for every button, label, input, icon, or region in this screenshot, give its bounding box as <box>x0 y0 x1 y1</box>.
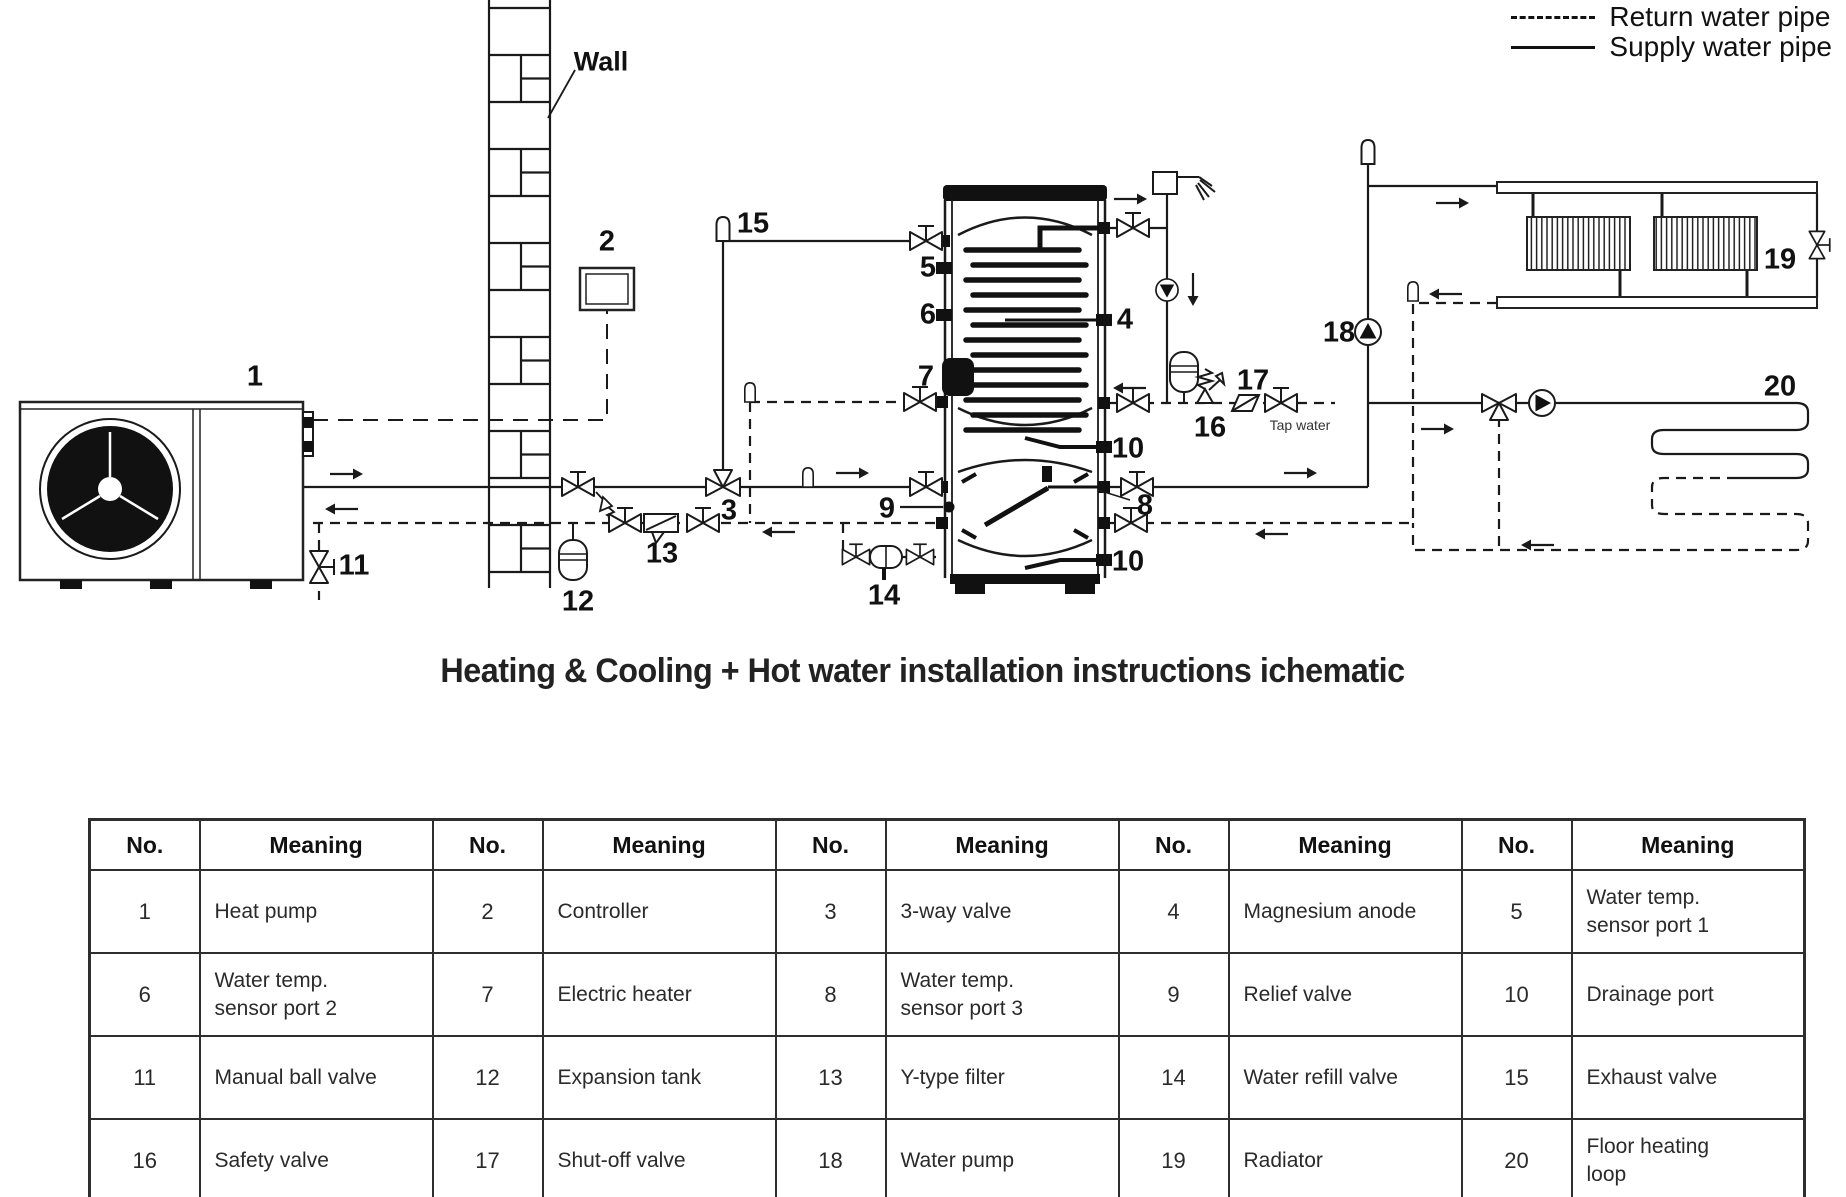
page-title-text: Heating & Cooling + Hot water installati… <box>441 652 1405 691</box>
diagram-label-12: 12 <box>562 588 594 617</box>
table-cell-meaning: Expansion tank <box>543 1036 776 1119</box>
drainage-port-lower <box>1096 554 1112 566</box>
table-cell-meaning: Water pump <box>886 1119 1119 1197</box>
table-cell-meaning: Electric heater <box>543 953 776 1036</box>
diagram-label-6: 6 <box>920 301 936 330</box>
table-cell-no: 20 <box>1462 1119 1572 1197</box>
controller <box>580 268 634 310</box>
diagram-label-2: 2 <box>599 228 615 257</box>
diagram-label-wall: Wall <box>574 49 629 76</box>
electric-heater <box>942 358 974 396</box>
page: 1Wall21556743131211149810101617181920Tap… <box>0 0 1846 1197</box>
diagram-label-13: 13 <box>646 540 678 569</box>
dashed-line-sample <box>1511 16 1595 19</box>
table-cell-no: 17 <box>433 1119 543 1197</box>
pressure-vessel <box>1170 352 1198 403</box>
table-cell-meaning: Magnesium anode <box>1229 870 1462 953</box>
diagram-label-10: 10 <box>1112 435 1144 464</box>
header-meaning: Meaning <box>1229 820 1462 871</box>
diagram-label-1: 1 <box>247 363 263 392</box>
diagram-label-7: 7 <box>918 363 934 392</box>
diagram-label-tap-water: Tap water <box>1270 418 1331 432</box>
floor-mixing-valve <box>1482 394 1516 420</box>
diagram-label-16: 16 <box>1194 414 1226 443</box>
circulation-pump <box>1156 279 1178 301</box>
table-row: 11Manual ball valve12Expansion tank13Y-t… <box>90 1036 1805 1119</box>
table-cell-no: 12 <box>433 1036 543 1119</box>
header-meaning: Meaning <box>1572 820 1805 871</box>
table-cell-no: 9 <box>1119 953 1229 1036</box>
legend-table-wrap: No.MeaningNo.MeaningNo.MeaningNo.Meaning… <box>88 818 1803 1197</box>
check-valve <box>1232 395 1259 411</box>
sensor-port-2 <box>936 309 952 321</box>
legend-supply-label: Supply water pipe <box>1609 31 1832 63</box>
tap-shutoff-valve <box>1265 388 1297 412</box>
table-cell-meaning: Controller <box>543 870 776 953</box>
diagram-label-3: 3 <box>721 497 737 526</box>
table-cell-meaning: Drainage port <box>1572 953 1805 1036</box>
diagram-label-14: 14 <box>868 582 900 611</box>
table-cell-no: 1 <box>90 870 200 953</box>
table-cell-meaning: Water refill valve <box>1229 1036 1462 1119</box>
diagram-label-5: 5 <box>920 254 936 283</box>
water-tank <box>936 185 1130 594</box>
drainage-port-upper <box>1096 441 1112 453</box>
diagram-label-20: 20 <box>1764 373 1796 402</box>
table-cell-no: 2 <box>433 870 543 953</box>
table-cell-meaning: Water temp. sensor port 3 <box>886 953 1119 1036</box>
table-cell-meaning: Y-type filter <box>886 1036 1119 1119</box>
table-cell-meaning: Safety valve <box>200 1119 433 1197</box>
table-cell-meaning: Shut-off valve <box>543 1119 776 1197</box>
table-cell-no: 19 <box>1119 1119 1229 1197</box>
table-row: 16Safety valve17Shut-off valve18Water pu… <box>90 1119 1805 1197</box>
diagram-label-4: 4 <box>1117 306 1133 335</box>
table-row: 6Water temp. sensor port 27Electric heat… <box>90 953 1805 1036</box>
table-cell-meaning: Water temp. sensor port 1 <box>1572 870 1805 953</box>
heat-pump <box>20 402 313 589</box>
header-meaning: Meaning <box>543 820 776 871</box>
table-cell-no: 5 <box>1462 870 1572 953</box>
table-cell-no: 14 <box>1119 1036 1229 1119</box>
table-row: 1Heat pump2Controller33-way valve4Magnes… <box>90 870 1805 953</box>
return-pipes <box>313 303 1808 600</box>
radiator-2 <box>1654 217 1757 270</box>
diagram-label-11: 11 <box>339 552 370 581</box>
relief-valve-port <box>944 502 955 513</box>
diagram-label-17: 17 <box>1237 367 1269 396</box>
wall-bricks <box>489 0 550 588</box>
exhaust-valve-15 <box>717 217 730 241</box>
shower-icon <box>1153 172 1215 200</box>
three-way-valve <box>706 470 740 496</box>
legend-table: No.MeaningNo.MeaningNo.MeaningNo.Meaning… <box>88 818 1806 1197</box>
header-no: No. <box>90 820 200 871</box>
installation-schematic: 1Wall21556743131211149810101617181920Tap… <box>0 0 1846 625</box>
diagram-label-10: 10 <box>1112 548 1144 577</box>
diagram-label-19: 19 <box>1764 246 1796 275</box>
diagram-label-15: 15 <box>737 210 769 239</box>
water-pump-18 <box>1355 319 1381 345</box>
floor-loop-pump <box>1529 390 1555 416</box>
water-refill-valve <box>870 546 902 580</box>
tank-coil <box>966 250 1086 430</box>
sensor-port-1 <box>936 262 952 274</box>
diagram-label-18: 18 <box>1323 319 1355 348</box>
radiator-valve <box>1809 231 1829 258</box>
expansion-tank <box>559 523 587 580</box>
diagram-label-8: 8 <box>1137 492 1153 521</box>
table-cell-no: 16 <box>90 1119 200 1197</box>
radiator-1 <box>1527 217 1630 270</box>
table-cell-meaning: Relief valve <box>1229 953 1462 1036</box>
header-no: No. <box>433 820 543 871</box>
legend-return-label: Return water pipe <box>1609 1 1830 33</box>
table-cell-meaning: 3-way valve <box>886 870 1119 953</box>
pipe-legend: Return water pipe Supply water pipe <box>1511 2 1832 62</box>
table-cell-meaning: Exhaust valve <box>1572 1036 1805 1119</box>
table-cell-no: 4 <box>1119 870 1229 953</box>
table-cell-meaning: Water temp. sensor port 2 <box>200 953 433 1036</box>
header-no: No. <box>776 820 886 871</box>
table-cell-meaning: Manual ball valve <box>200 1036 433 1119</box>
table-cell-no: 18 <box>776 1119 886 1197</box>
header-no: No. <box>1462 820 1572 871</box>
table-cell-no: 8 <box>776 953 886 1036</box>
manual-ball-valve <box>310 551 334 583</box>
diagram-label-9: 9 <box>879 495 895 524</box>
table-header-row: No.MeaningNo.MeaningNo.MeaningNo.Meaning… <box>90 820 1805 871</box>
table-cell-meaning: Floor heating loop <box>1572 1119 1805 1197</box>
table-cell-no: 13 <box>776 1036 886 1119</box>
header-no: No. <box>1119 820 1229 871</box>
page-title: Heating & Cooling + Hot water installati… <box>0 652 1846 691</box>
table-cell-no: 11 <box>90 1036 200 1119</box>
table-cell-no: 10 <box>1462 953 1572 1036</box>
table-cell-no: 3 <box>776 870 886 953</box>
wall-leader-line <box>548 70 575 118</box>
legend-supply: Supply water pipe <box>1511 32 1832 62</box>
header-meaning: Meaning <box>200 820 433 871</box>
table-cell-no: 6 <box>90 953 200 1036</box>
table-cell-no: 15 <box>1462 1036 1572 1119</box>
solid-line-sample <box>1511 46 1595 49</box>
pumps <box>1156 279 1555 416</box>
table-cell-no: 7 <box>433 953 543 1036</box>
controller-comm-line <box>313 310 607 420</box>
table-cell-meaning: Radiator <box>1229 1119 1462 1197</box>
safety-valve <box>1197 369 1224 403</box>
table-cell-meaning: Heat pump <box>200 870 433 953</box>
header-meaning: Meaning <box>886 820 1119 871</box>
legend-return: Return water pipe <box>1511 2 1832 32</box>
